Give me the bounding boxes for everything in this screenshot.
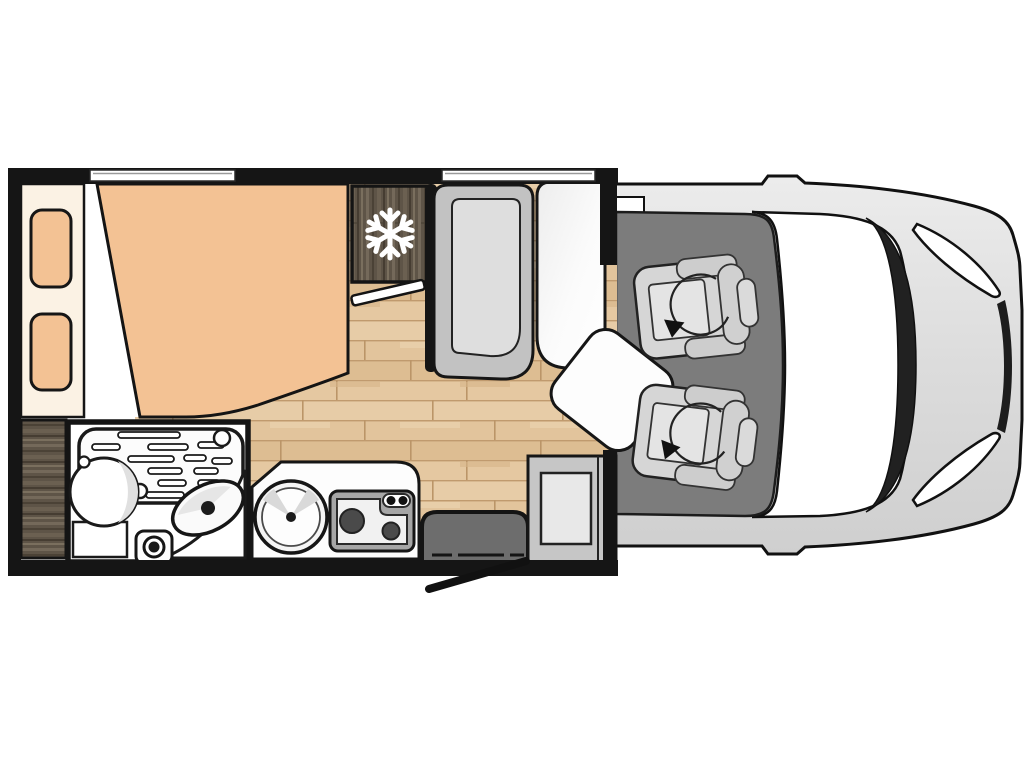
toilet <box>70 457 138 558</box>
floorplan-canvas <box>0 0 1024 768</box>
shower-drain <box>136 531 172 564</box>
double-bed <box>97 184 348 417</box>
motorhome-floorplan <box>0 0 1024 768</box>
side-cabinet <box>528 456 616 563</box>
hob-knob <box>399 496 408 505</box>
round-sink <box>255 481 327 553</box>
lounge <box>425 182 605 379</box>
wardrobe <box>21 420 66 558</box>
pillow <box>31 210 71 287</box>
window <box>90 170 235 181</box>
refrigerator-cabinet <box>352 186 428 282</box>
burner-small <box>383 523 400 540</box>
pillow <box>31 314 71 390</box>
vehicle-cab <box>610 176 1022 554</box>
wall-stub-top-right <box>600 168 617 265</box>
window <box>442 170 595 181</box>
burner-large <box>340 509 364 533</box>
wall-left <box>8 168 21 576</box>
hob-knob <box>387 496 396 505</box>
kitchen <box>252 462 419 559</box>
two-burner-hob <box>330 491 414 551</box>
bathroom <box>68 422 252 564</box>
wall-stub-bottom-right <box>603 450 617 563</box>
bench-cushion <box>452 199 520 356</box>
